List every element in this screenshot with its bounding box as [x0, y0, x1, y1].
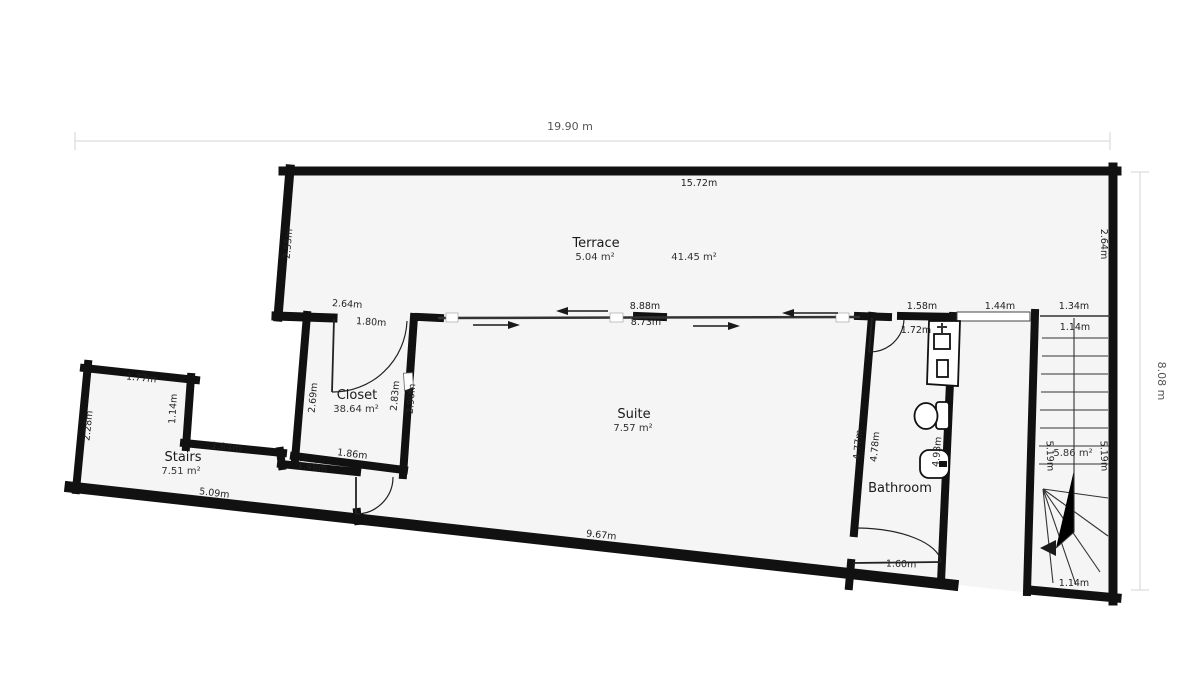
floor-plan-svg: 19.90 m 8.08 m	[0, 0, 1200, 674]
slider-panel-gap	[610, 313, 623, 322]
overall-height-label: 8.08 m	[1155, 362, 1168, 401]
terrace-area: 5.04 m²	[575, 252, 614, 263]
dim-stair-bottom: 1.14m	[1059, 578, 1089, 589]
dim-stairwell-left: 5.19m	[1043, 441, 1055, 472]
right-dimension-line	[1131, 172, 1149, 590]
suite-area: 7.57 m²	[613, 423, 652, 434]
cased-opening	[957, 312, 1030, 321]
bathroom-label: Bathroom	[868, 481, 932, 496]
counter-cutout	[937, 360, 948, 377]
dim-stair-top-inner: 1.14m	[1060, 322, 1090, 333]
dim-stairwell-right: 5.19m	[1097, 441, 1109, 472]
closet-area: 38.64 m²	[333, 404, 379, 415]
dim-stair-top-outer: 1.34m	[1059, 301, 1089, 312]
closet-label: Closet	[337, 388, 378, 403]
dim-slider-inner: 8.73m	[631, 317, 661, 328]
dim-opening-top: 1.44m	[985, 301, 1015, 312]
dim-closet-door-inner: 1.80m	[356, 316, 387, 329]
dim-closet-door-outer: 2.64m	[332, 298, 363, 311]
terrace-label: Terrace	[571, 236, 619, 251]
stairwell-area: 5.86 m²	[1053, 448, 1092, 459]
suite-label: Suite	[617, 407, 650, 422]
dim-slider-outer: 8.88m	[630, 301, 660, 312]
overall-width-label: 19.90 m	[547, 120, 593, 133]
top-dimension-line	[75, 132, 1110, 150]
toilet-icon	[915, 402, 950, 429]
dim-bath-door-top: 1.72m	[901, 325, 931, 336]
sink-icon	[934, 334, 950, 349]
stairs-area: 7.51 m²	[161, 466, 200, 477]
dim-stairs-notch: 1.14m	[167, 393, 180, 424]
dim-bath-top-wall: 1.58m	[907, 301, 937, 312]
dim-terrace-top: 15.72m	[681, 178, 717, 189]
slider-panel-gap	[446, 313, 458, 322]
dim-bath-door-bottom: 1.60m	[886, 558, 917, 570]
stairs-label: Stairs	[164, 450, 201, 465]
dim-terrace-right: 2.64m	[1098, 229, 1109, 259]
slider-panel-gap	[836, 313, 849, 322]
level-area: 41.45 m²	[671, 252, 717, 263]
